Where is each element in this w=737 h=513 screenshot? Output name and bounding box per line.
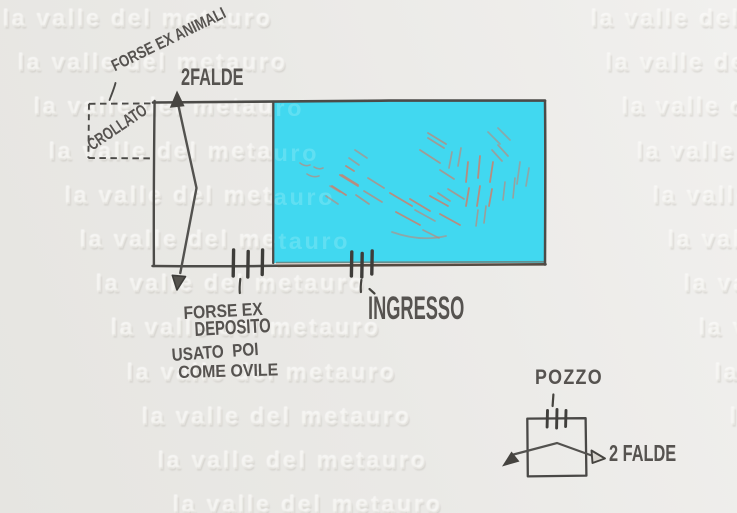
svg-text:la valle del metauro: la valle del metauro: [34, 95, 304, 121]
svg-text:la valle del metauro: la valle del metauro: [80, 228, 350, 254]
svg-text:la valle del metauro: la valle del metauro: [65, 184, 335, 210]
